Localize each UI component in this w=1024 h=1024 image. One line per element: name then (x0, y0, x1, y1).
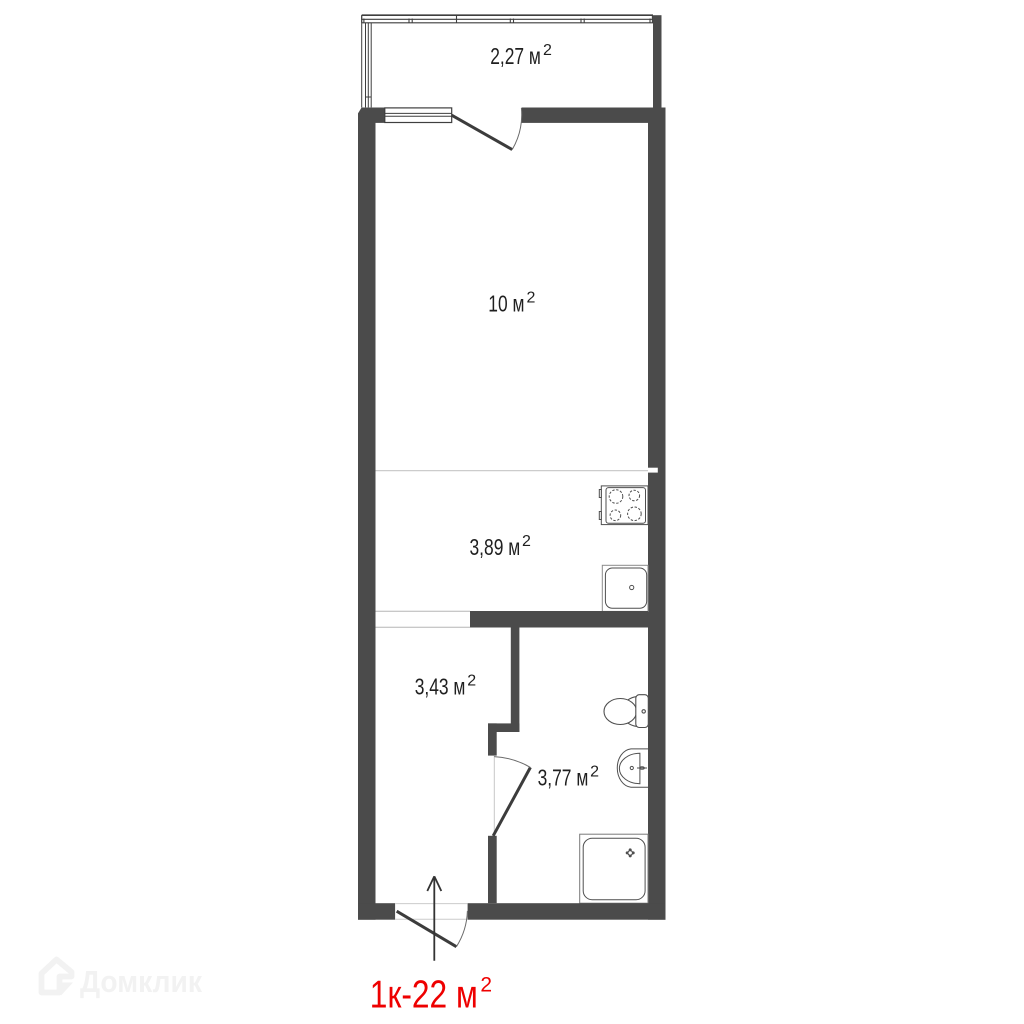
svg-text:3,89 м: 3,89 м (470, 534, 521, 560)
svg-text:2: 2 (590, 764, 599, 781)
svg-text:3,77 м: 3,77 м (538, 765, 589, 791)
svg-text:2: 2 (543, 42, 552, 59)
svg-text:2: 2 (527, 290, 536, 307)
svg-text:2: 2 (467, 672, 476, 689)
svg-text:3,43 м: 3,43 м (415, 673, 466, 699)
svg-text:1к-22 м: 1к-22 м (370, 973, 478, 1016)
svg-text:2: 2 (522, 533, 531, 550)
svg-text:Домклик: Домклик (80, 964, 202, 999)
svg-text:10 м: 10 м (488, 291, 524, 317)
svg-text:2: 2 (480, 974, 492, 997)
svg-text:2,27 м: 2,27 м (490, 43, 541, 69)
